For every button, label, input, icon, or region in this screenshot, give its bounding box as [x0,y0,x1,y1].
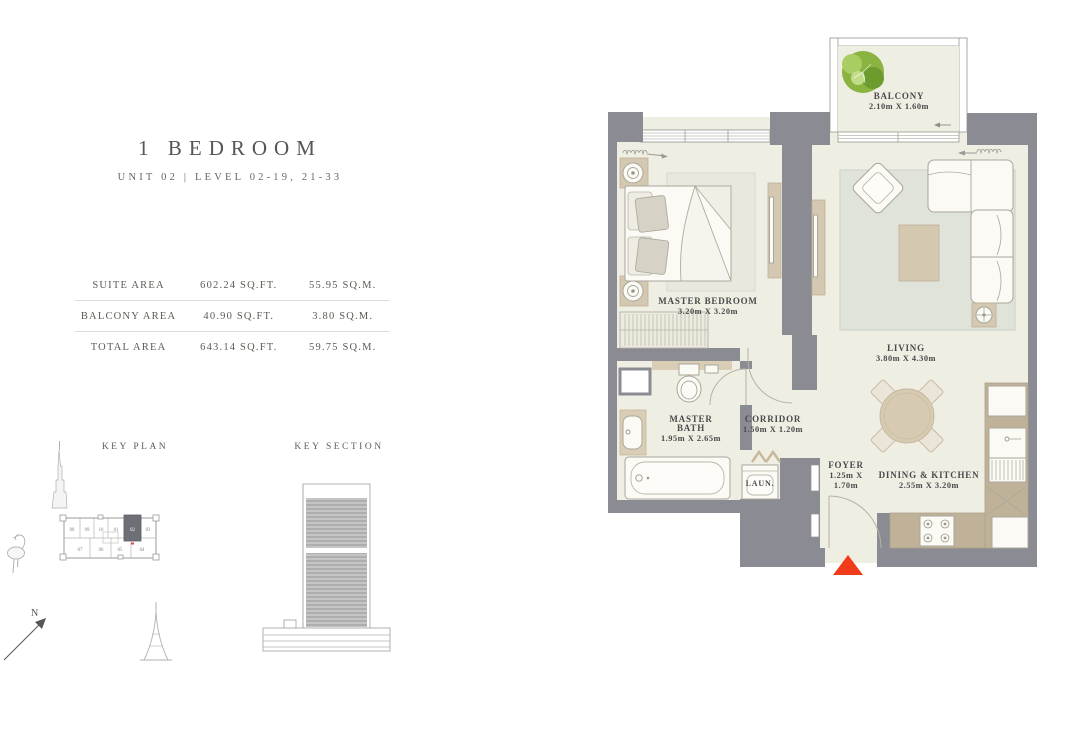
unit-number: 03 [146,528,151,533]
unit-number: 09 [85,528,90,533]
tree-icon [842,51,884,93]
dresser [768,183,781,278]
podium [263,628,390,651]
area-sqft: 602.24 SQ.FT. [182,280,295,291]
table-row: SUITE AREA 602.24 SQ.FT. 55.95 SQ.M. [75,270,390,301]
laundry-label: LAUN. [746,479,775,488]
unit-number: 08 [70,528,75,533]
area-sqm: 55.95 SQ.M. [295,280,390,291]
bath-shelf [705,365,718,373]
area-sqm: 59.75 SQ.M. [295,342,390,353]
nightstand [620,158,648,188]
balcony-label: BALCONY [874,91,925,101]
floor-plan: BALCONY 2.10m X 1.60m [595,25,1055,585]
area-sqft: 643.14 SQ.FT. [182,342,295,353]
wardrobe [620,312,708,348]
balcony: BALCONY 2.10m X 1.60m [830,38,967,142]
side-table [972,303,996,327]
north-arrow: N [4,608,46,660]
unit-number: 10 [99,528,104,533]
area-label: TOTAL AREA [75,342,182,353]
creek-tower-icon [140,602,172,660]
area-label: SUITE AREA [75,280,182,291]
shaft-niche [620,369,650,394]
master-bedroom-label: MASTER BEDROOM [658,296,757,306]
coffee-table [899,225,939,281]
tower-section [263,484,390,651]
tv-unit [812,200,825,295]
foyer-dims2: 1.70m [834,481,858,490]
cabinet [992,517,1028,548]
wall-niche [811,514,819,537]
dining-table [880,389,934,443]
living-label: LIVING [887,343,925,353]
pillow [635,195,669,232]
dining-kitchen-dims: 2.55m X 3.20m [899,481,959,490]
master-bath-label2: BATH [677,423,705,433]
key-section: KEY SECTION [240,436,420,671]
area-table: SUITE AREA 602.24 SQ.FT. 55.95 SQ.M. BAL… [75,270,390,362]
burj-khalifa-icon [52,441,67,508]
section-highlight-upper [306,498,367,548]
area-sqm: 3.80 SQ.M. [295,311,390,322]
area-sqft: 40.90 SQ.FT. [182,311,295,322]
unit-level-subtitle: UNIT 02 | LEVEL 02-19, 21-33 [70,172,390,183]
flamingo-icon [8,535,25,573]
key-plan-label: KEY PLAN [102,442,168,452]
master-bath-dims: 1.95m X 2.65m [661,434,721,443]
corridor-label: CORRIDOR [745,414,801,424]
area-label: BALCONY AREA [75,311,182,322]
stove [920,516,954,546]
north-label: N [31,608,38,619]
foyer-label: FOYER [828,460,864,470]
bathtub [625,457,730,499]
bed [625,186,731,281]
kitchen-counter-bottom [890,513,985,548]
section-highlight-lower [306,553,367,627]
toilet [677,364,701,402]
dining-kitchen-label: DINING & KITCHEN [879,470,980,480]
table-row: BALCONY AREA 40.90 SQ.FT. 3.80 SQ.M. [75,301,390,332]
kitchen-sink [989,428,1026,482]
corridor-dims: 1.50m X 1.20m [743,425,803,434]
foyer-dims1: 1.25m X [829,471,862,480]
key-section-label: KEY SECTION [294,442,383,452]
unit-number: 05 [118,548,123,553]
pillow [635,237,669,274]
balcony-dims: 2.10m X 1.60m [869,102,929,111]
unit-number-highlighted: 02 [130,528,135,533]
living-dims: 3.80m X 4.30m [876,354,936,363]
page-title: 1 BEDROOM [90,136,370,161]
unit-entry-dot [131,543,134,545]
key-plan: KEY PLAN 08 09 10 01 02 [0,436,210,686]
master-bedroom-dims: 3.20m X 3.20m [678,307,738,316]
table-row: TOTAL AREA 643.14 SQ.FT. 59.75 SQ.M. [75,332,390,362]
sliding-door [838,132,959,142]
unit-number: 04 [140,548,145,553]
unit-number: 01 [114,528,119,533]
sink [620,410,646,455]
floorplate: 08 09 10 01 02 03 07 06 05 04 [60,515,159,560]
fridge [988,386,1026,416]
unit-number: 07 [78,548,83,553]
wall-niche [811,465,819,491]
unit-number: 06 [99,548,104,553]
bedroom-window [640,130,770,142]
